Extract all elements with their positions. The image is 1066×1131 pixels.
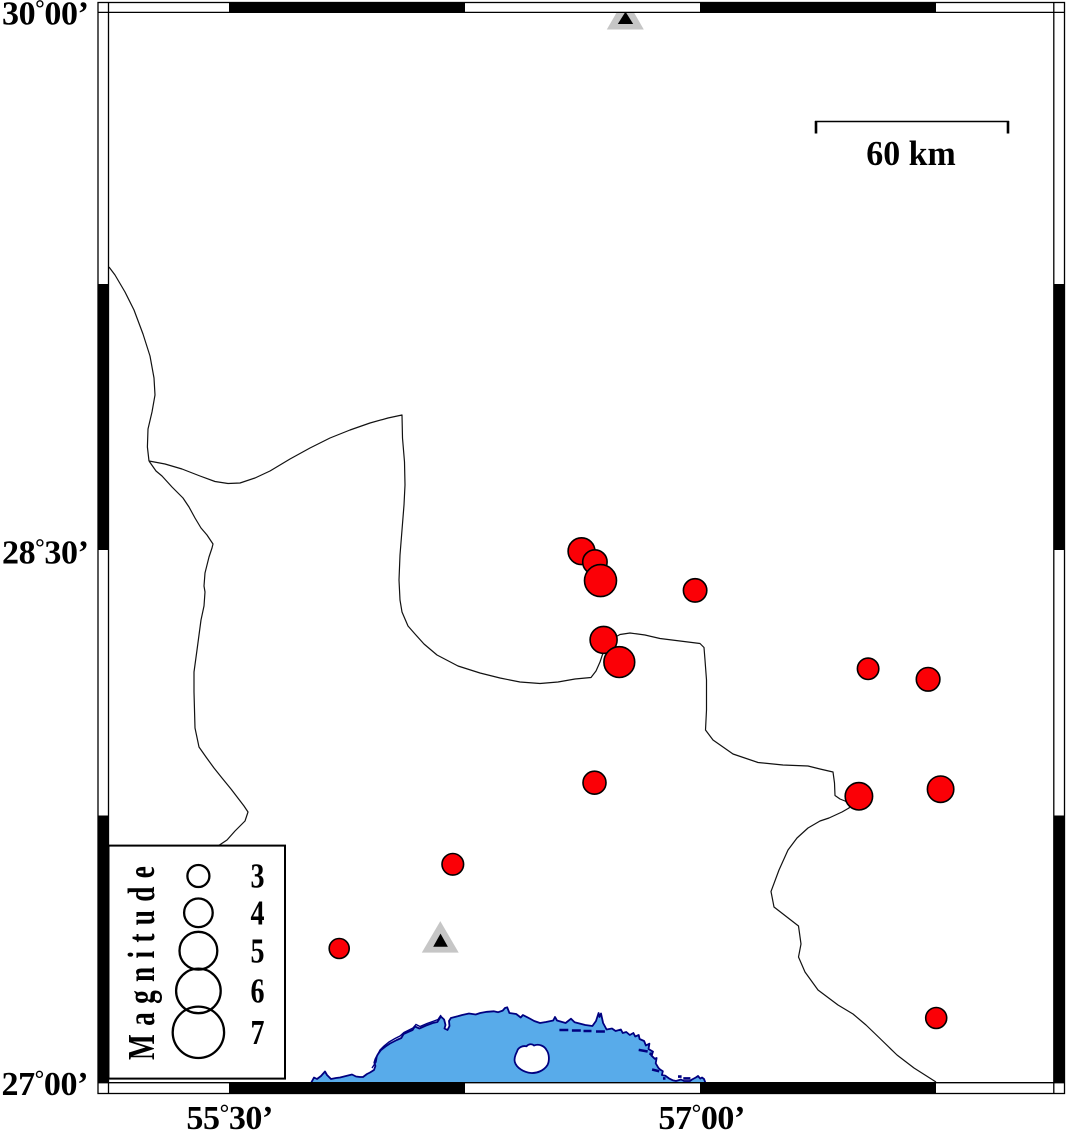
svg-text:3: 3 xyxy=(251,857,265,896)
svg-text:27°00’: 27°00’ xyxy=(1,1066,88,1103)
svg-text:30°00’: 30°00’ xyxy=(2,0,89,33)
svg-text:6: 6 xyxy=(251,972,265,1011)
svg-text:55°30’: 55°30’ xyxy=(186,1100,273,1131)
svg-text:4: 4 xyxy=(251,893,265,932)
svg-text:60 km: 60 km xyxy=(866,134,956,173)
svg-text:7: 7 xyxy=(251,1013,265,1052)
svg-text:28°30’: 28°30’ xyxy=(2,535,89,572)
svg-text:57°00’: 57°00’ xyxy=(658,1100,745,1131)
svg-text:5: 5 xyxy=(251,931,265,970)
svg-text:Magnitude: Magnitude xyxy=(121,858,163,1060)
